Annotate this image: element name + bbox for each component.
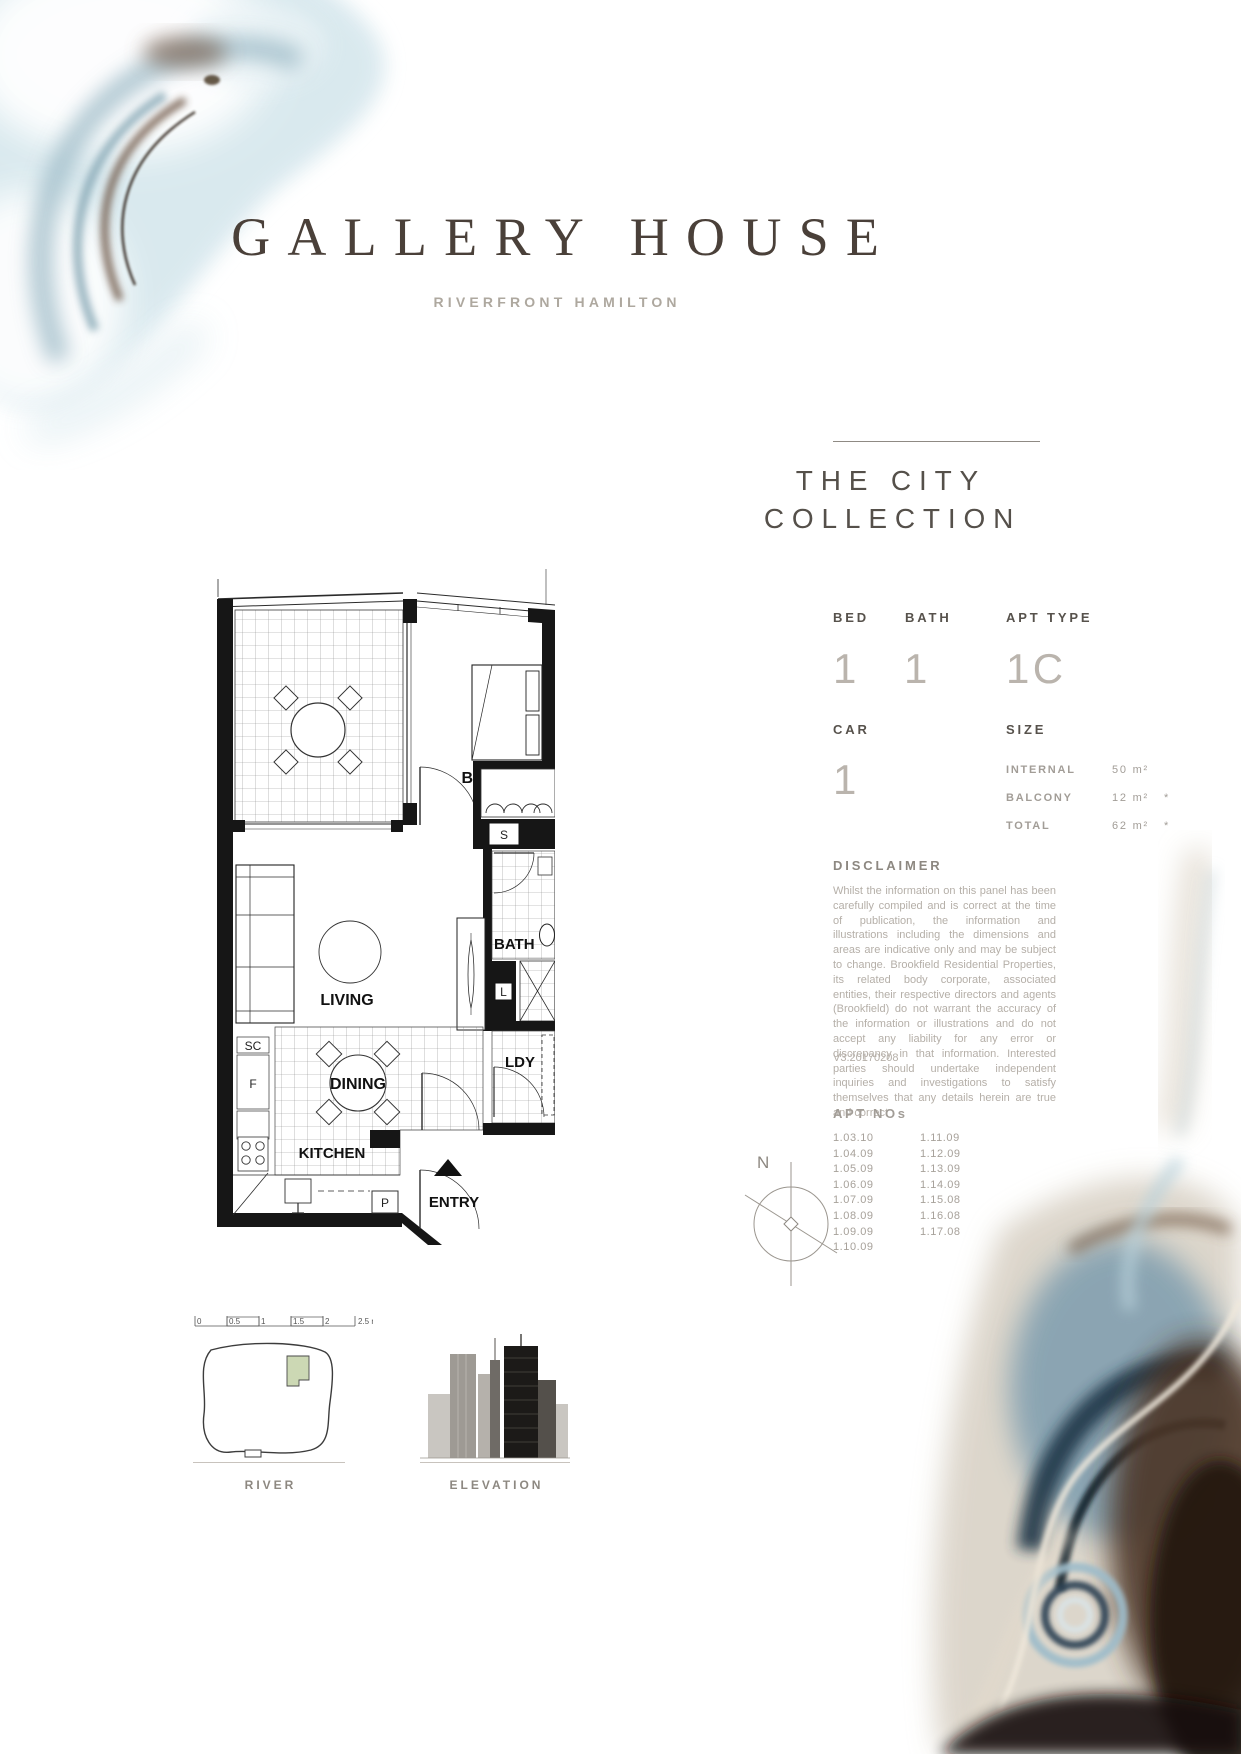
- apt-type-label: APT TYPE: [1006, 610, 1092, 625]
- elevation-divider: [420, 1462, 570, 1463]
- elevation-drawing: [420, 1332, 570, 1460]
- bed-value: 1: [833, 645, 860, 693]
- size-row-label: BALCONY: [1006, 792, 1112, 804]
- size-row-value: 50 m²: [1112, 764, 1164, 776]
- plan-bathroom: BATH L: [483, 849, 555, 1031]
- plan-label-living: LIVING: [320, 992, 373, 1009]
- size-row-balcony: BALCONY 12 m² *: [1006, 784, 1184, 812]
- bath-value: 1: [904, 645, 931, 693]
- plan-living: LIVING: [236, 865, 485, 1030]
- size-row-total: TOTAL 62 m² *: [1006, 812, 1184, 840]
- balcony-table: [291, 703, 345, 757]
- car-value: 1: [833, 756, 860, 804]
- plan-label-bath: BATH: [494, 936, 535, 953]
- size-row-note: *: [1164, 792, 1184, 804]
- apt-no: 1.11.09: [920, 1131, 961, 1147]
- plan-label-sc: SC: [245, 1039, 262, 1053]
- apt-no: 1.14.09: [920, 1178, 961, 1194]
- plan-label-f: F: [249, 1077, 256, 1091]
- plan-label-p: P: [381, 1196, 389, 1210]
- collection-title: THE CITY COLLECTION: [756, 462, 1018, 538]
- scale-tick-label: 1: [261, 1317, 266, 1326]
- collection-divider: [833, 441, 1040, 442]
- river-divider: [193, 1462, 345, 1463]
- compass-icon: N: [735, 1140, 850, 1300]
- compass-north-label: N: [757, 1153, 771, 1172]
- plan-entry: ENTRY: [420, 1159, 479, 1229]
- apt-nos-heading: APT NOs: [833, 1106, 908, 1121]
- car-label: CAR: [833, 722, 870, 737]
- page-title: GALLERY HOUSE: [190, 206, 920, 268]
- plan-bedroom-window: [417, 593, 555, 624]
- apt-no: 1.12.09: [920, 1147, 961, 1163]
- site-plan: [193, 1336, 345, 1458]
- plan-balcony: [218, 593, 417, 832]
- plan-wall-bottom: [217, 1213, 402, 1227]
- size-table: INTERNAL 50 m² BALCONY 12 m² * TOTAL 62 …: [1006, 756, 1184, 840]
- size-row-value: 62 m²: [1112, 820, 1164, 832]
- brochure-page: GALLERY HOUSE RIVERFRONT HAMILTON THE CI…: [0, 0, 1241, 1754]
- bath-label: BATH: [905, 610, 952, 625]
- collection-line2: COLLECTION: [756, 500, 1018, 538]
- plan-laundry: LDY: [483, 1031, 555, 1135]
- floor-plan: BED 1 S: [190, 515, 555, 1245]
- collection-line1: THE CITY: [756, 462, 1018, 500]
- sofa: [236, 865, 294, 1023]
- apt-no: 1.16.08: [920, 1209, 961, 1225]
- plan-label-dining: DINING: [330, 1076, 386, 1093]
- disclaimer-version: V3.20170208: [833, 1052, 898, 1064]
- entry-arrow-icon: [434, 1159, 462, 1176]
- scale-tick-label: 2: [325, 1317, 330, 1326]
- apt-no: 1.15.08: [920, 1193, 961, 1209]
- rug: [319, 921, 381, 983]
- plan-wall-right: [542, 623, 555, 761]
- page-subtitle: RIVERFRONT HAMILTON: [190, 294, 920, 310]
- elevation-label: ELEVATION: [420, 1478, 570, 1492]
- wardrobe: [481, 769, 555, 817]
- apt-no: 1.17.08: [920, 1225, 961, 1241]
- size-row-note: *: [1164, 820, 1184, 832]
- disclaimer-body: Whilst the information on this panel has…: [833, 884, 1056, 1121]
- plan-wall-left: [217, 599, 233, 1223]
- size-row-internal: INTERNAL 50 m²: [1006, 756, 1184, 784]
- scale-tick-label: 0.5: [229, 1317, 241, 1326]
- plan-label-l: L: [500, 985, 507, 999]
- river-label: RIVER: [193, 1478, 345, 1492]
- apt-type-value: 1C: [1006, 645, 1066, 693]
- bed-label: BED: [833, 610, 869, 625]
- sink: [285, 1179, 311, 1203]
- scale-tick-label: 0: [197, 1317, 202, 1326]
- plan-label-ldy: LDY: [505, 1054, 535, 1071]
- scale-end-label: 2.5 metres: [358, 1317, 373, 1326]
- disclaimer-heading: DISCLAIMER: [833, 858, 943, 873]
- scale-tick-label: 1.5: [293, 1317, 305, 1326]
- size-row-label: INTERNAL: [1006, 764, 1112, 776]
- size-row-label: TOTAL: [1006, 820, 1112, 832]
- plan-label-s: S: [500, 828, 508, 842]
- apt-nos-col2: 1.11.09 1.12.09 1.13.09 1.14.09 1.15.08 …: [920, 1131, 961, 1240]
- plan-dining-kitchen: DINING SC F KITCHEN P: [233, 1027, 483, 1215]
- size-label: SIZE: [1006, 722, 1046, 737]
- plan-label-entry: ENTRY: [429, 1194, 479, 1211]
- plan-bedroom: BED 1 S: [420, 665, 555, 849]
- cooktop: [238, 1137, 268, 1171]
- plan-label-kitchen: KITCHEN: [299, 1145, 366, 1162]
- apt-no: 1.13.09: [920, 1162, 961, 1178]
- site-outline: [203, 1343, 332, 1453]
- size-row-value: 12 m²: [1112, 792, 1164, 804]
